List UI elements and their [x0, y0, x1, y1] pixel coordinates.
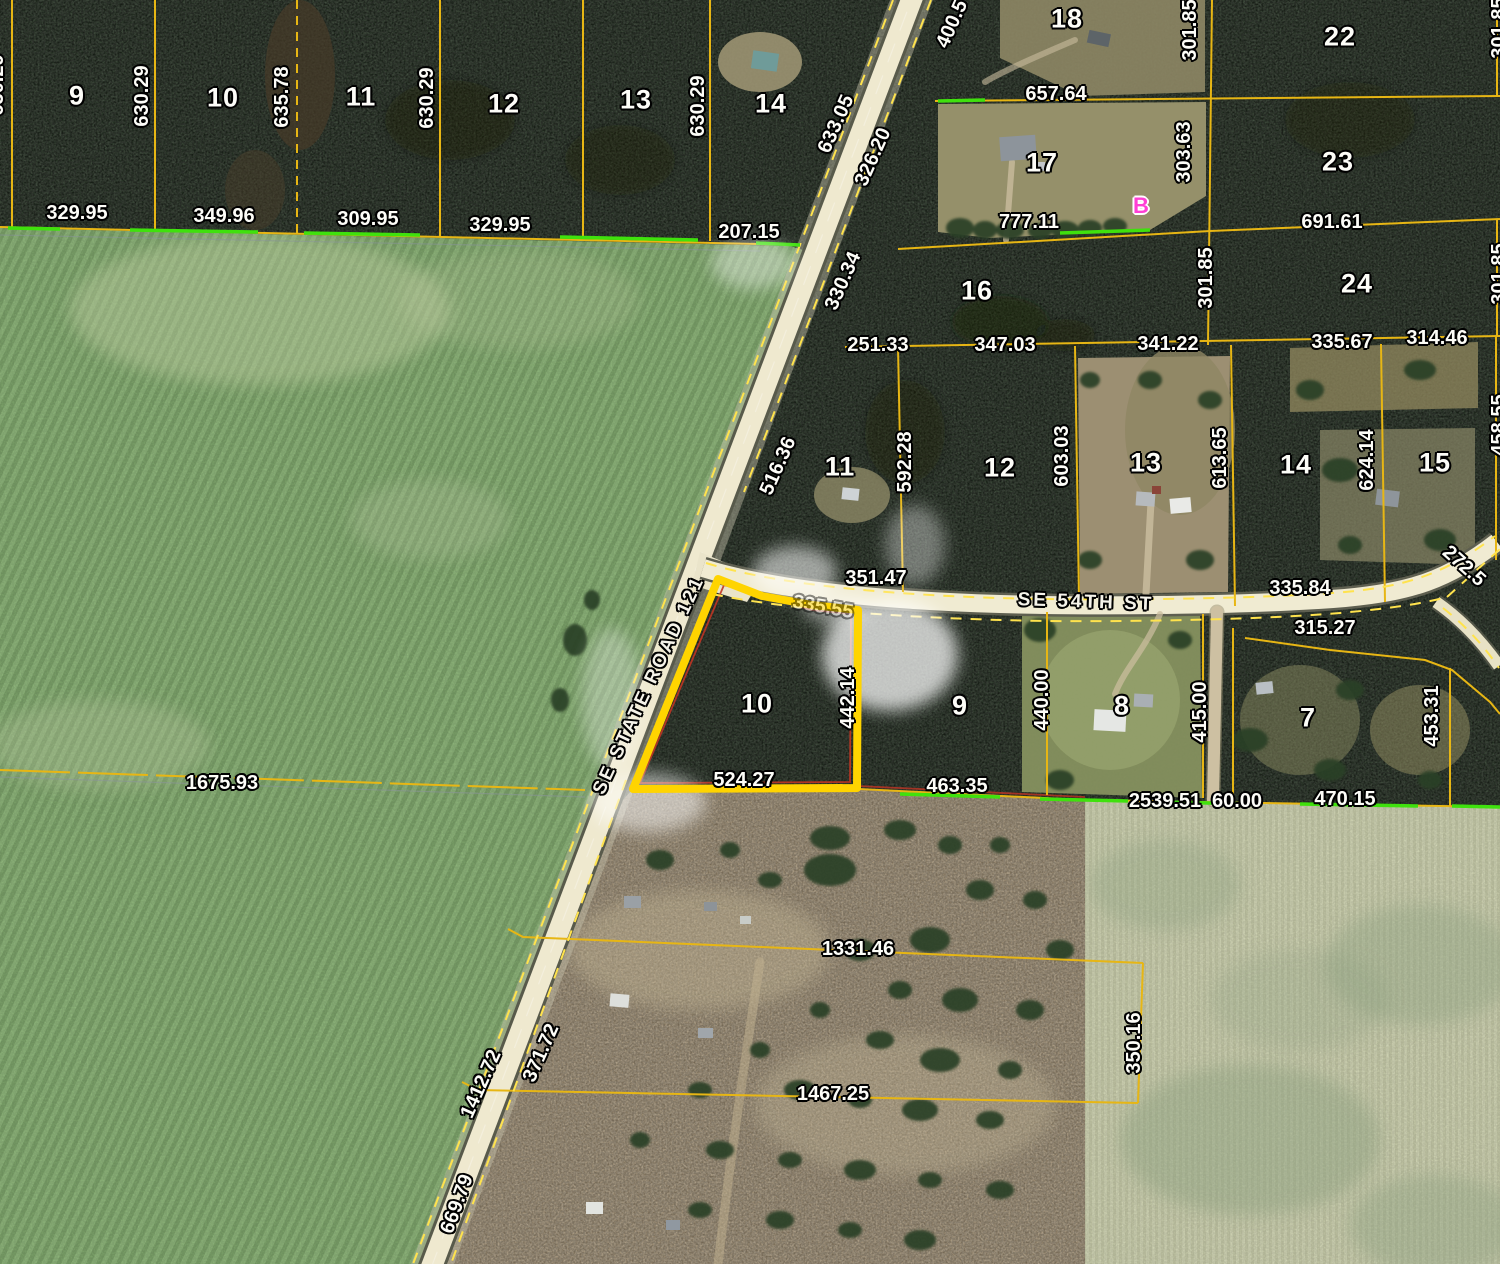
dimension-label: 301.85 [1196, 247, 1216, 308]
dimension-label: 635.78 [272, 66, 292, 127]
lot-number-label: 10 [207, 85, 239, 112]
lot-number-label: 23 [1322, 149, 1354, 176]
dimension-label: 301.85 [1180, 0, 1200, 61]
dimension-label: 301.85 [1489, 243, 1500, 304]
dimension-label: 350.16 [1124, 1012, 1144, 1073]
dimension-label: 630.29 [688, 75, 708, 136]
dimension-label: 630.29 [0, 54, 7, 115]
dimension-label: 207.15 [718, 222, 779, 242]
dimension-label: 309.95 [337, 209, 398, 229]
dimension-label: 351.47 [845, 568, 906, 588]
lot-number-label: 11 [825, 454, 856, 481]
dimension-label: 630.29 [132, 65, 152, 126]
dimension-label: 442.14 [838, 667, 858, 728]
dimension-label: 524.27 [713, 770, 774, 790]
lot-number-label: 17 [1026, 150, 1058, 177]
dimension-label: 347.03 [974, 335, 1035, 355]
dimension-label: 415.00 [1190, 681, 1210, 742]
dimension-label: 341.22 [1137, 334, 1198, 354]
lot-number-label: 11 [346, 84, 377, 111]
lot-number-label: 14 [1280, 452, 1312, 479]
dimension-label: 1467.25 [797, 1084, 869, 1104]
lot-number-label: 9 [69, 83, 85, 110]
lot-number-label: 10 [741, 691, 773, 718]
dimension-label: 624.14 [1357, 429, 1377, 490]
lot-number-label: 14 [755, 91, 787, 118]
dimension-label: 329.95 [46, 203, 107, 223]
road-name-label: SE 54TH ST [1017, 590, 1154, 614]
dimension-label: 470.15 [1314, 789, 1375, 809]
dimension-label: 314.46 [1406, 328, 1467, 348]
dimension-label: 657.64 [1025, 84, 1086, 104]
dimension-label: 440.00 [1032, 669, 1052, 730]
dimension-label: 1675.93 [186, 773, 258, 793]
lot-number-label: 7 [1300, 705, 1316, 732]
dimension-label: 2539.51 [1129, 791, 1201, 811]
dimension-label: 1331.46 [822, 939, 894, 959]
dimension-label: 315.27 [1294, 618, 1355, 638]
dimension-label: 453.31 [1422, 685, 1442, 746]
dimension-label: 777.11 [999, 212, 1059, 232]
lot-number-label: 18 [1051, 6, 1083, 33]
dimension-label: 251.33 [847, 335, 908, 355]
dimension-label: 303.63 [1174, 121, 1194, 182]
lot-number-label: 15 [1419, 450, 1451, 477]
lot-number-label: 24 [1341, 271, 1373, 298]
dimension-label: 613.65 [1210, 427, 1230, 488]
lot-number-label: 9 [952, 693, 968, 720]
dimension-label: 329.95 [469, 215, 530, 235]
lot-number-label: 12 [984, 455, 1016, 482]
point-marker-label: B [1133, 195, 1149, 217]
dimension-label: 691.61 [1301, 212, 1362, 232]
dimension-label: 463.35 [926, 776, 987, 796]
pale-field-region [1085, 800, 1500, 1264]
lot-number-label: 22 [1324, 24, 1356, 51]
dimension-label: 301.85 [1489, 0, 1500, 59]
aerial-basemap [0, 0, 1500, 1264]
dimension-label: 349.96 [193, 206, 254, 226]
dimension-label: 458.55 [1489, 394, 1500, 455]
dimension-label: 335.67 [1311, 332, 1372, 352]
dimension-label: 592.28 [895, 431, 915, 492]
lot-number-label: 13 [1130, 450, 1162, 477]
dimension-label: 603.03 [1052, 425, 1072, 486]
lot-number-label: 12 [488, 91, 520, 118]
lot-number-label: 8 [1114, 693, 1130, 720]
dimension-label: 60.00 [1212, 791, 1262, 811]
lot-number-label: 13 [620, 87, 652, 114]
dimension-label: 630.29 [417, 67, 437, 128]
dimension-label: 335.84 [1269, 578, 1330, 598]
lot-number-label: 16 [961, 278, 993, 305]
aerial-parcel-map[interactable]: 9101112131418221723162411121314151098732… [0, 0, 1500, 1264]
